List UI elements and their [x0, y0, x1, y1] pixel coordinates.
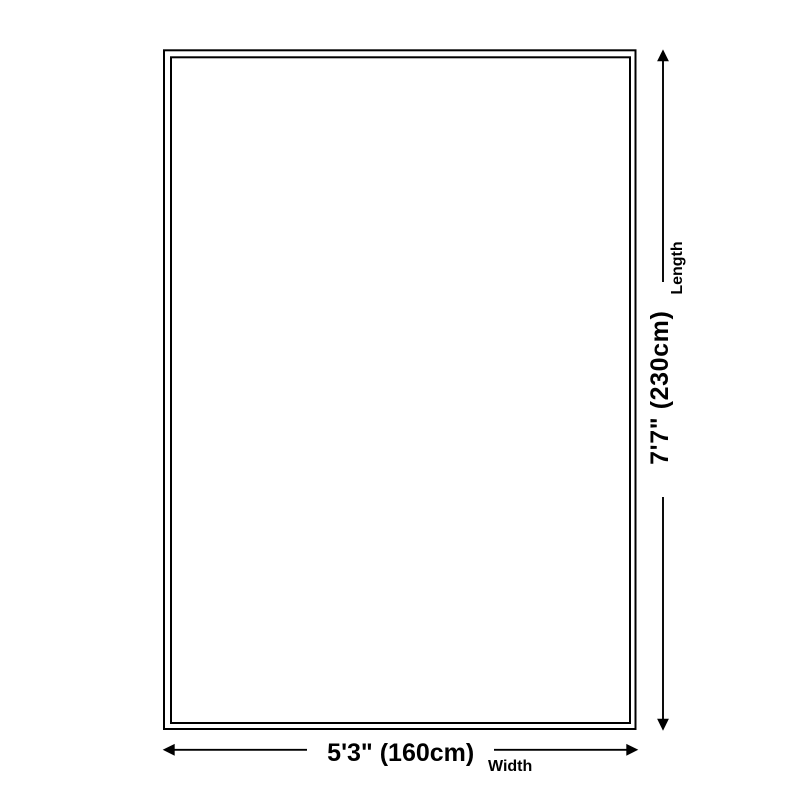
svg-text:5'3" (160cm): 5'3" (160cm) — [327, 739, 474, 767]
svg-text:7'7" (230cm): 7'7" (230cm) — [646, 311, 674, 465]
svg-text:Length: Length — [669, 241, 686, 294]
svg-text:Width: Width — [488, 758, 532, 775]
